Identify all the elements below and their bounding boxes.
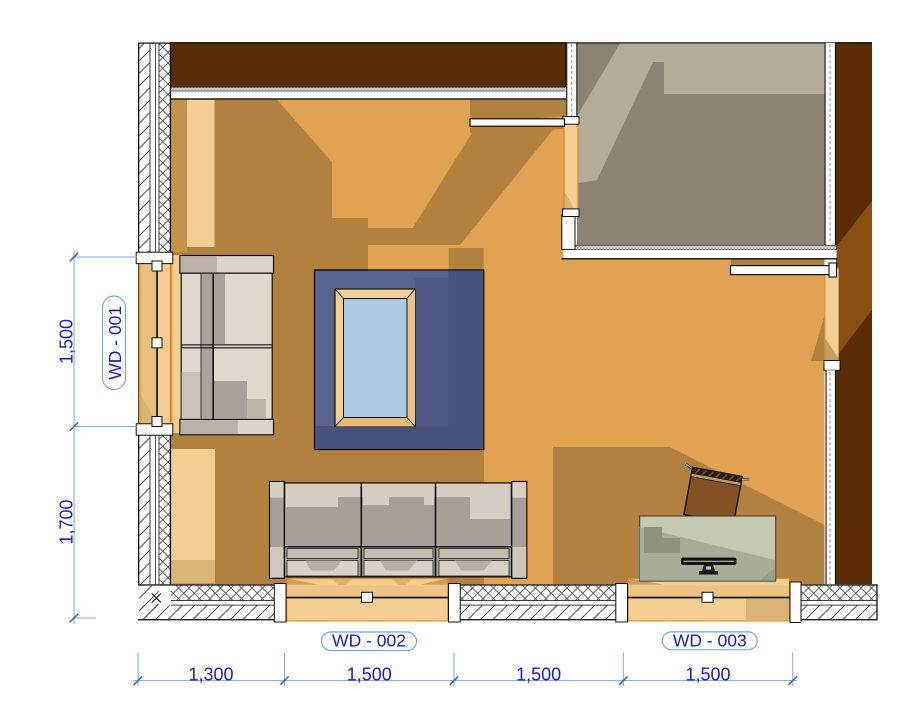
- svg-text:1,500: 1,500: [516, 664, 561, 684]
- svg-text:1,500: 1,500: [347, 664, 392, 684]
- svg-text:1,700: 1,700: [56, 499, 76, 544]
- svg-text:WD - 001: WD - 001: [105, 306, 125, 380]
- svg-text:1,500: 1,500: [685, 664, 730, 684]
- svg-text:WD - 002: WD - 002: [332, 630, 406, 650]
- svg-text:1,300: 1,300: [188, 664, 233, 684]
- svg-text:1,500: 1,500: [56, 319, 76, 364]
- svg-text:WD - 003: WD - 003: [673, 630, 747, 650]
